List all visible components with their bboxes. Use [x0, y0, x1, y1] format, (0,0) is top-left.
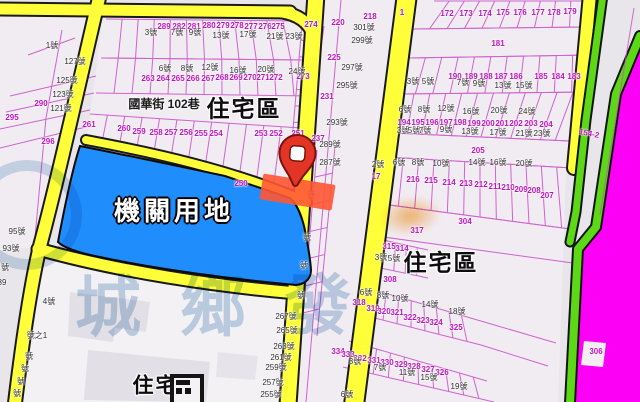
road-top	[0, 9, 290, 12]
building-block-icon	[170, 374, 204, 402]
parcel-306-sliver	[581, 341, 606, 367]
zoning-map: 城鄉發 國華街 102巷 290296295289282281280279278…	[0, 0, 640, 402]
building-footprint	[216, 352, 258, 380]
